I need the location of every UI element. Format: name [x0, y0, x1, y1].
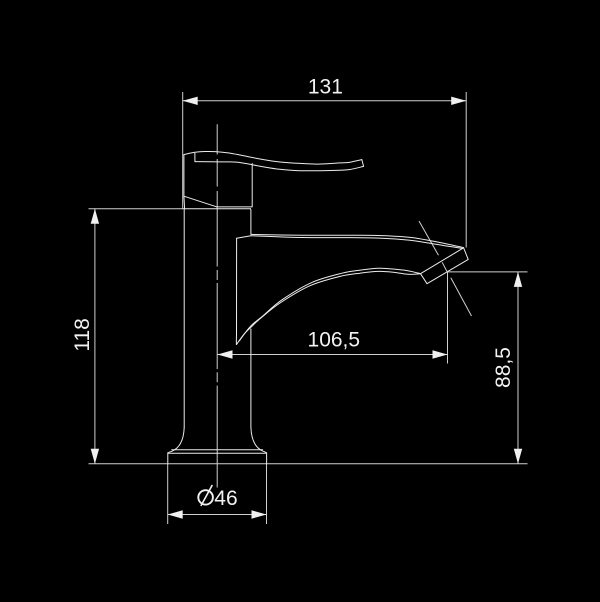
svg-text:88,5: 88,5: [492, 347, 515, 388]
svg-text:46: 46: [214, 487, 237, 510]
svg-text:118: 118: [71, 318, 94, 351]
svg-text:106,5: 106,5: [308, 328, 361, 351]
svg-text:131: 131: [308, 76, 343, 99]
